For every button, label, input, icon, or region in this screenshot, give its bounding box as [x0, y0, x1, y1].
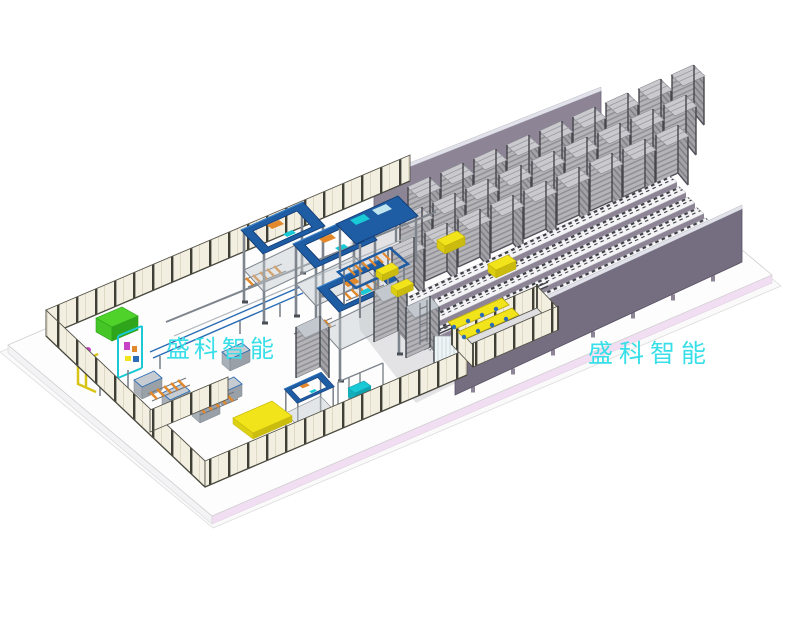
magenta-module: [124, 342, 130, 350]
rack-tower: [424, 223, 458, 283]
factory-3d-render: 盛科智能 盛科智能: [0, 0, 800, 618]
watermark-left: 盛科智能: [166, 335, 278, 363]
factory-layout-svg: 盛科智能 盛科智能: [0, 0, 800, 618]
watermark-right: 盛科智能: [588, 339, 712, 368]
shelf-tower: [296, 316, 329, 378]
rack-tower: [655, 125, 689, 185]
